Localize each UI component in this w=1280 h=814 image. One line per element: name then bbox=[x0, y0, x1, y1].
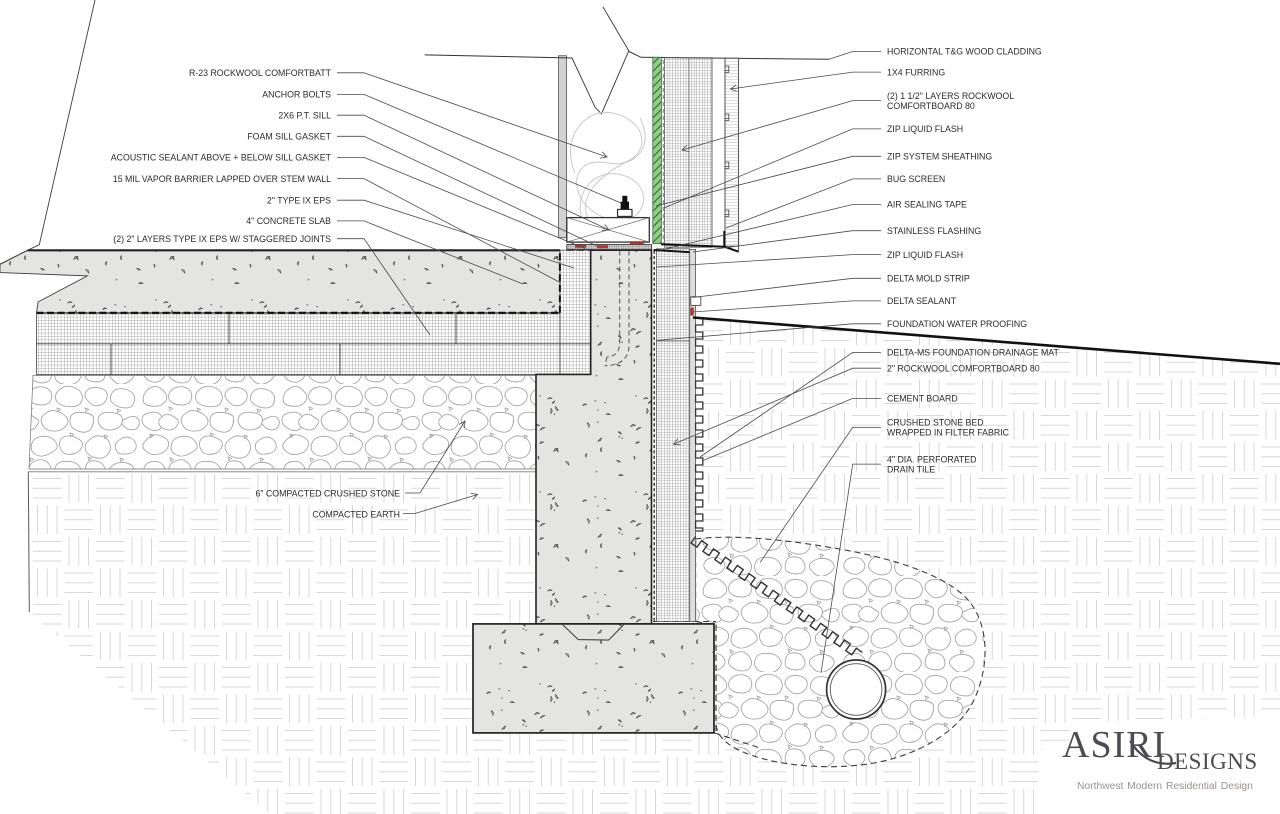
svg-text:ANCHOR BOLTS: ANCHOR BOLTS bbox=[262, 90, 331, 100]
svg-text:R-23 ROCKWOOL COMFORTBATT: R-23 ROCKWOOL COMFORTBATT bbox=[189, 68, 332, 78]
svg-text:2" ROCKWOOL COMFORTBOARD 80: 2" ROCKWOOL COMFORTBOARD 80 bbox=[887, 363, 1040, 373]
svg-text:COMPACTED EARTH: COMPACTED EARTH bbox=[312, 510, 400, 520]
svg-text:2" TYPE IX EPS: 2" TYPE IX EPS bbox=[267, 195, 331, 205]
svg-text:DELTA SEALANT: DELTA SEALANT bbox=[887, 296, 957, 306]
svg-text:15 MIL VAPOR BARRIER LAPPED OV: 15 MIL VAPOR BARRIER LAPPED OVER STEM WA… bbox=[113, 174, 331, 184]
svg-text:FOUNDATION WATER PROOFING: FOUNDATION WATER PROOFING bbox=[887, 319, 1027, 329]
svg-text:DELTA-MS FOUNDATION DRAINAGE M: DELTA-MS FOUNDATION DRAINAGE MAT bbox=[887, 348, 1059, 358]
svg-text:DELTA MOLD STRIP: DELTA MOLD STRIP bbox=[887, 274, 970, 284]
svg-text:WRAPPED IN FILTER FABRIC: WRAPPED IN FILTER FABRIC bbox=[887, 428, 1010, 438]
svg-text:DESIGNS: DESIGNS bbox=[1157, 749, 1258, 774]
svg-text:HORIZONTAL T&G WOOD CLADDING: HORIZONTAL T&G WOOD CLADDING bbox=[887, 47, 1042, 57]
svg-text:ACOUSTIC SEALANT ABOVE + BELOW: ACOUSTIC SEALANT ABOVE + BELOW SILL GASK… bbox=[111, 153, 332, 163]
svg-text:FOAM SILL GASKET: FOAM SILL GASKET bbox=[247, 132, 331, 142]
svg-text:COMFORTBOARD 80: COMFORTBOARD 80 bbox=[887, 101, 975, 111]
svg-text:4" CONCRETE SLAB: 4" CONCRETE SLAB bbox=[246, 216, 331, 226]
svg-text:2X6 P.T. SILL: 2X6 P.T. SILL bbox=[278, 110, 331, 120]
svg-text:AIR SEALING TAPE: AIR SEALING TAPE bbox=[887, 200, 967, 210]
svg-text:1X4 FURRING: 1X4 FURRING bbox=[887, 67, 945, 77]
svg-text:ZIP SYSTEM SHEATHING: ZIP SYSTEM SHEATHING bbox=[887, 152, 992, 162]
svg-text:ZIP LIQUID FLASH: ZIP LIQUID FLASH bbox=[887, 250, 963, 260]
svg-text:6" COMPACTED CRUSHED STONE: 6" COMPACTED CRUSHED STONE bbox=[255, 489, 400, 499]
svg-text:(2) 2" LAYERS TYPE IX EPS W/ S: (2) 2" LAYERS TYPE IX EPS W/ STAGGERED J… bbox=[113, 234, 331, 244]
svg-text:(2) 1 1/2" LAYERS ROCKWOOL: (2) 1 1/2" LAYERS ROCKWOOL bbox=[887, 91, 1014, 101]
svg-text:BUG SCREEN: BUG SCREEN bbox=[887, 174, 945, 184]
svg-text:CRUSHED STONE BED: CRUSHED STONE BED bbox=[887, 418, 984, 428]
svg-text:4" DIA. PERFORATED: 4" DIA. PERFORATED bbox=[887, 454, 976, 464]
svg-text:CEMENT BOARD: CEMENT BOARD bbox=[887, 394, 958, 404]
svg-text:ZIP LIQUID FLASH: ZIP LIQUID FLASH bbox=[887, 124, 963, 134]
svg-text:STAINLESS FLASHING: STAINLESS FLASHING bbox=[887, 226, 981, 236]
svg-text:DRAIN TILE: DRAIN TILE bbox=[887, 464, 935, 474]
svg-text:Northwest Modern Residential D: Northwest Modern Residential Design bbox=[1077, 781, 1253, 792]
